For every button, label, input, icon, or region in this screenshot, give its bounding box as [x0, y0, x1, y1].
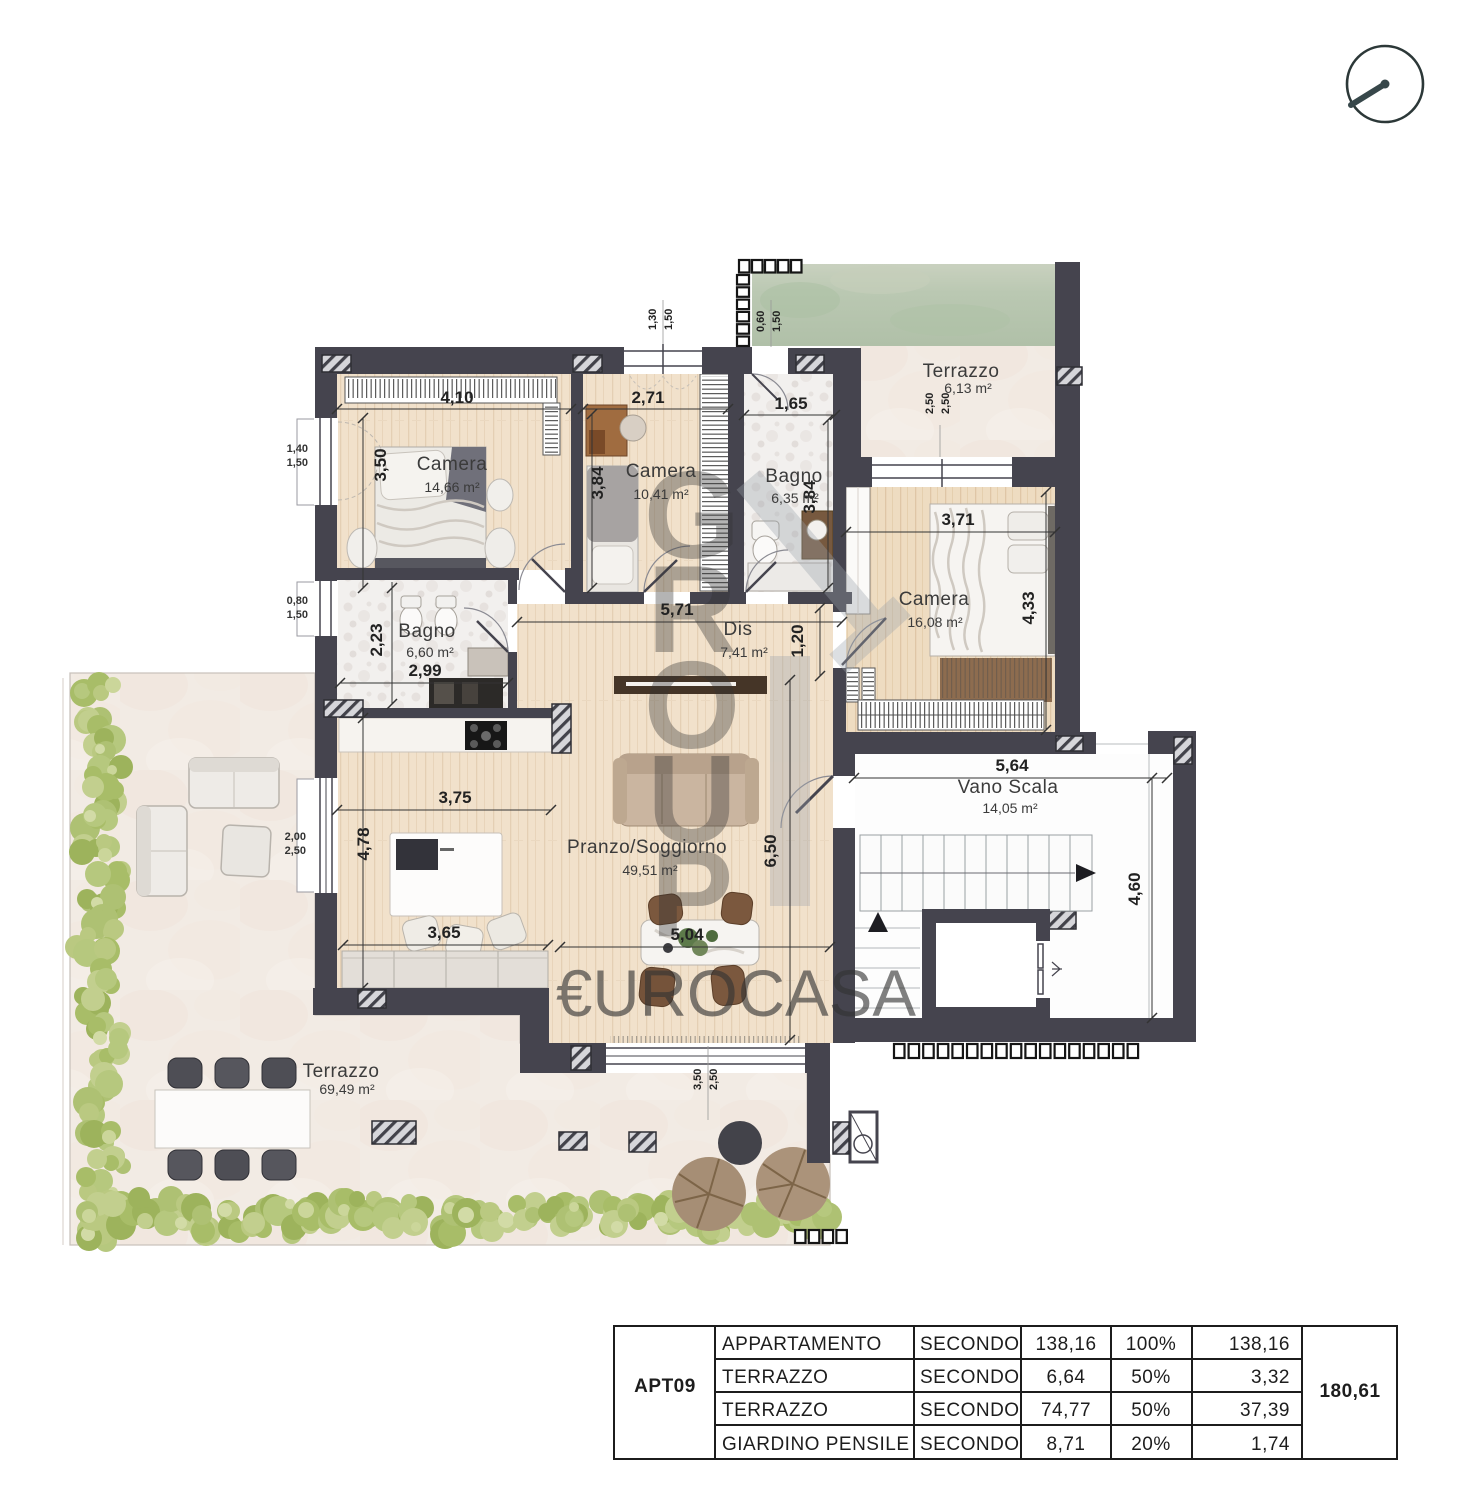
svg-text:5,04: 5,04: [670, 925, 704, 944]
svg-text:6,64: 6,64: [1047, 1367, 1086, 1388]
svg-text:3,65: 3,65: [427, 923, 460, 942]
svg-text:SECONDO: SECONDO: [920, 1400, 1020, 1421]
svg-text:50%: 50%: [1131, 1400, 1171, 1421]
svg-text:GIARDINO PENSILE: GIARDINO PENSILE: [722, 1434, 910, 1455]
svg-text:6,60 m²: 6,60 m²: [406, 644, 454, 660]
svg-text:180,61: 180,61: [1319, 1381, 1380, 1402]
svg-text:Camera: Camera: [626, 461, 697, 482]
svg-text:4,60: 4,60: [1125, 872, 1144, 905]
svg-text:1,50: 1,50: [287, 609, 308, 621]
svg-text:SECONDO: SECONDO: [920, 1434, 1020, 1455]
svg-text:2,00: 2,00: [285, 831, 306, 843]
svg-text:1,30: 1,30: [647, 309, 659, 330]
svg-text:TERRAZZO: TERRAZZO: [722, 1400, 828, 1421]
svg-text:1,50: 1,50: [663, 309, 675, 330]
svg-text:69,49 m²: 69,49 m²: [319, 1081, 375, 1097]
svg-text:APT09: APT09: [634, 1376, 696, 1397]
svg-text:1,65: 1,65: [774, 394, 807, 413]
svg-text:3,75: 3,75: [438, 788, 471, 807]
svg-text:2,50: 2,50: [924, 393, 936, 414]
svg-text:10,41 m²: 10,41 m²: [633, 486, 689, 502]
svg-text:Pranzo/Soggiorno: Pranzo/Soggiorno: [567, 837, 727, 858]
svg-text:50%: 50%: [1131, 1367, 1171, 1388]
svg-text:4,10: 4,10: [440, 388, 473, 407]
svg-text:SECONDO: SECONDO: [920, 1334, 1020, 1355]
svg-text:3,84: 3,84: [588, 466, 607, 500]
svg-text:3,71: 3,71: [941, 510, 974, 529]
svg-text:2,50: 2,50: [708, 1069, 720, 1090]
svg-text:37,39: 37,39: [1240, 1400, 1290, 1421]
svg-text:Camera: Camera: [899, 589, 970, 610]
svg-text:1,20: 1,20: [788, 624, 807, 657]
svg-text:1,50: 1,50: [771, 311, 783, 332]
svg-text:Terrazzo: Terrazzo: [923, 361, 1000, 382]
svg-text:4,78: 4,78: [354, 827, 373, 860]
svg-text:14,66 m²: 14,66 m²: [424, 479, 480, 495]
svg-text:Bagno: Bagno: [765, 466, 822, 487]
svg-text:APPARTAMENTO: APPARTAMENTO: [722, 1334, 882, 1355]
svg-text:74,77: 74,77: [1041, 1400, 1091, 1421]
svg-text:2,50: 2,50: [285, 845, 306, 857]
svg-text:49,51 m²: 49,51 m²: [622, 862, 678, 878]
svg-text:Bagno: Bagno: [398, 621, 455, 642]
svg-text:6,13 m²: 6,13 m²: [944, 380, 992, 396]
svg-text:138,16: 138,16: [1229, 1334, 1290, 1355]
svg-text:6,50: 6,50: [761, 834, 780, 867]
svg-text:16,08 m²: 16,08 m²: [907, 614, 963, 630]
svg-text:TERRAZZO: TERRAZZO: [722, 1367, 828, 1388]
svg-text:1,40: 1,40: [287, 443, 308, 455]
svg-text:2,71: 2,71: [631, 388, 664, 407]
svg-text:3,50: 3,50: [371, 448, 390, 481]
svg-text:0,60: 0,60: [755, 311, 767, 332]
svg-text:6,35 m²: 6,35 m²: [771, 490, 819, 506]
svg-text:Terrazzo: Terrazzo: [303, 1061, 380, 1082]
svg-text:Dis: Dis: [724, 619, 753, 640]
svg-text:138,16: 138,16: [1035, 1334, 1096, 1355]
svg-text:4,33: 4,33: [1019, 591, 1038, 624]
svg-text:1,50: 1,50: [287, 457, 308, 469]
svg-text:7,41 m²: 7,41 m²: [720, 644, 768, 660]
svg-text:1,74: 1,74: [1251, 1434, 1290, 1455]
svg-text:3,32: 3,32: [1251, 1367, 1290, 1388]
svg-text:SECONDO: SECONDO: [920, 1367, 1020, 1388]
svg-text:Camera: Camera: [417, 454, 488, 475]
svg-text:20%: 20%: [1131, 1434, 1171, 1455]
svg-text:8,71: 8,71: [1047, 1434, 1086, 1455]
svg-text:2,23: 2,23: [367, 623, 386, 656]
svg-text:2,99: 2,99: [408, 661, 441, 680]
svg-text:Vano Scala: Vano Scala: [958, 777, 1059, 798]
svg-text:14,05 m²: 14,05 m²: [982, 800, 1038, 816]
svg-text:0,80: 0,80: [287, 595, 308, 607]
svg-text:5,71: 5,71: [660, 600, 693, 619]
svg-text:3,50: 3,50: [692, 1069, 704, 1090]
svg-text:100%: 100%: [1126, 1334, 1177, 1355]
svg-text:€UROCASA: €UROCASA: [556, 956, 916, 1030]
svg-text:5,64: 5,64: [995, 756, 1029, 775]
